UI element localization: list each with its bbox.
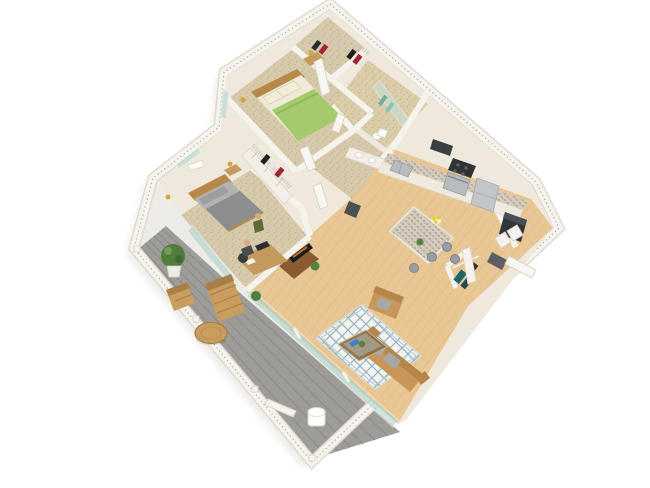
table-lamp-gold [228, 162, 233, 167]
table-lamp-gold [166, 195, 171, 200]
person-standing-head [255, 213, 261, 219]
island-flowers-yellow [432, 217, 435, 220]
bar-stool [428, 253, 437, 262]
balcony-post [252, 386, 258, 392]
balcony-plant-texture [164, 247, 172, 255]
bar-stool [451, 255, 460, 264]
balcony-plant-pot [167, 266, 181, 277]
balcony-post [309, 455, 315, 461]
coffee-table-plant [359, 341, 365, 347]
apartment-isometric-scene [0, 0, 650, 488]
stove-burner [453, 169, 456, 172]
bar-stool [410, 264, 419, 273]
stove-burner [464, 166, 467, 169]
bath-sink [368, 157, 375, 163]
balcony-plant-texture [175, 255, 183, 263]
stove-burner [461, 172, 464, 175]
bath-sink [355, 152, 362, 158]
table-lamp-gold [308, 50, 313, 55]
plant-by-glass [251, 291, 261, 301]
balcony-post [134, 246, 140, 252]
floor-plan-3d-render [0, 0, 650, 488]
balcony-table [195, 323, 227, 344]
table-lamp-gold [240, 97, 245, 102]
island-flowers-yellow [436, 216, 439, 219]
bar-stool [443, 243, 452, 252]
person-sitting-head [244, 240, 250, 246]
island-plant [416, 238, 423, 245]
plant-by-console [311, 262, 320, 271]
stove-burner [456, 163, 459, 166]
island-flowers-yellow [434, 220, 437, 223]
balcony-post [193, 316, 199, 322]
walkway-cylinder-top [308, 408, 325, 417]
